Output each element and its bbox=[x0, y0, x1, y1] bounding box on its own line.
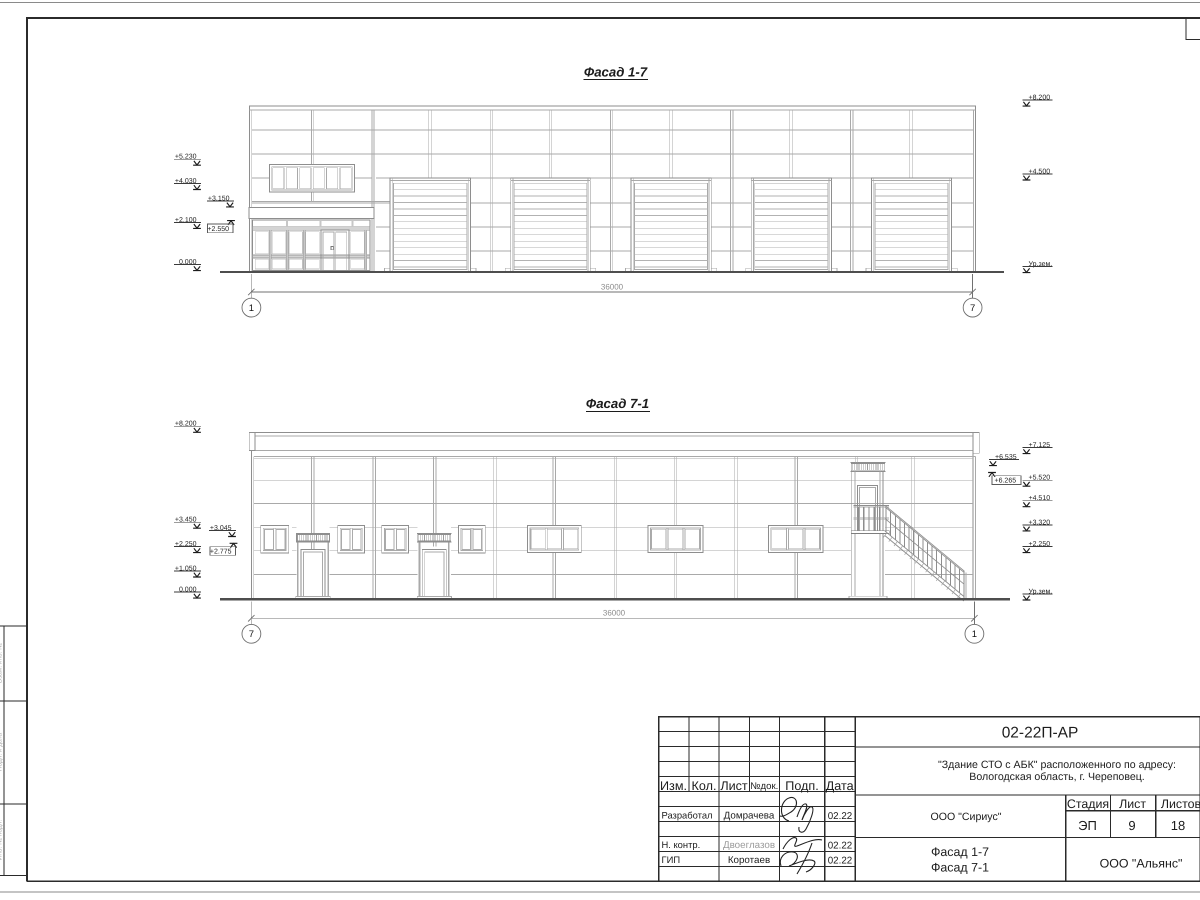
svg-text:02-22П-АР: 02-22П-АР bbox=[1002, 725, 1079, 742]
svg-text:Фасад 7-1: Фасад 7-1 bbox=[931, 860, 989, 874]
svg-text:Фасад 7-1: Фасад 7-1 bbox=[586, 396, 649, 411]
svg-text:Изм.: Изм. bbox=[660, 779, 687, 793]
svg-text:+6.265: +6.265 bbox=[995, 478, 1017, 485]
svg-text:18: 18 bbox=[1171, 818, 1185, 833]
svg-text:Подп. и дата: Подп. и дата bbox=[0, 732, 4, 771]
svg-text:Дата: Дата bbox=[826, 779, 854, 793]
svg-text:02.22: 02.22 bbox=[828, 840, 853, 851]
svg-text:Листов: Листов bbox=[1161, 797, 1200, 811]
svg-text:36000: 36000 bbox=[603, 609, 626, 618]
svg-text:№док.: №док. bbox=[750, 781, 778, 792]
svg-text:9: 9 bbox=[1128, 818, 1135, 833]
svg-text:Кол.: Кол. bbox=[692, 779, 717, 793]
svg-text:02.22: 02.22 bbox=[828, 855, 853, 866]
svg-text:Домрачева: Домрачева bbox=[724, 810, 775, 821]
svg-text:7: 7 bbox=[970, 303, 975, 314]
svg-text:"Здание СТО с АБК" расположенн: "Здание СТО с АБК" расположенного по адр… bbox=[938, 759, 1176, 771]
svg-text:36000: 36000 bbox=[601, 282, 624, 291]
svg-text:Коротаев: Коротаев bbox=[728, 855, 770, 866]
svg-text:Подп.: Подп. bbox=[785, 779, 818, 793]
svg-text:Инв. № подл.: Инв. № подл. bbox=[0, 820, 4, 861]
svg-text:+2.775: +2.775 bbox=[210, 549, 232, 556]
svg-text:Н. контр.: Н. контр. bbox=[662, 839, 701, 850]
svg-text:1: 1 bbox=[249, 303, 254, 314]
svg-text:ООО "Альянс": ООО "Альянс" bbox=[1100, 857, 1183, 871]
svg-text:Фасад 1-7: Фасад 1-7 bbox=[584, 65, 648, 80]
svg-text:ООО "Сириус": ООО "Сириус" bbox=[930, 811, 1001, 823]
svg-text:ГИП: ГИП bbox=[662, 854, 681, 865]
svg-text:Лист: Лист bbox=[1119, 797, 1146, 811]
svg-text:Вологодская область, г. Черепо: Вологодская область, г. Череповец. bbox=[969, 771, 1144, 783]
svg-text:Двоеглазов: Двоеглазов bbox=[723, 840, 775, 851]
svg-text:7: 7 bbox=[249, 629, 254, 640]
svg-text:02.22: 02.22 bbox=[828, 811, 853, 822]
svg-text:+2.550: +2.550 bbox=[207, 226, 229, 233]
svg-text:Стадия: Стадия bbox=[1067, 797, 1109, 811]
svg-text:Фасад 1-7: Фасад 1-7 bbox=[931, 845, 989, 859]
svg-text:1: 1 bbox=[972, 629, 977, 640]
svg-text:Разработал: Разработал bbox=[662, 809, 713, 820]
svg-text:Лист: Лист bbox=[720, 779, 748, 793]
svg-text:ЭП: ЭП bbox=[1078, 818, 1097, 833]
svg-text:Взам. инв. №: Взам. инв. № bbox=[0, 643, 4, 683]
